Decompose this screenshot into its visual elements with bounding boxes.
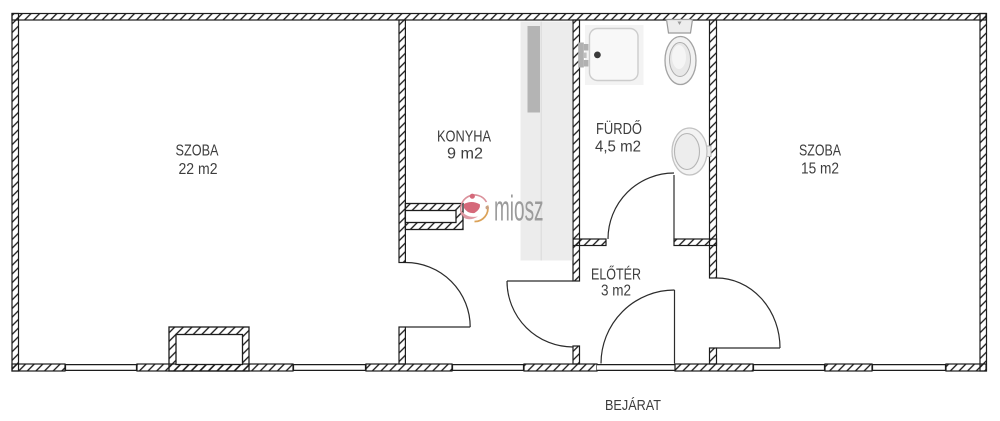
svg-text:22 m2: 22 m2: [179, 161, 218, 178]
svg-text:BEJÁRAT: BEJÁRAT: [605, 397, 661, 414]
svg-text:9 m2: 9 m2: [447, 146, 483, 163]
svg-text:ELŐTÉR: ELŐTÉR: [591, 265, 641, 284]
svg-text:FÜRDŐ: FÜRDŐ: [596, 119, 642, 138]
svg-text:miosz: miosz: [494, 189, 544, 229]
svg-text:4,5 m2: 4,5 m2: [595, 139, 641, 156]
svg-text:3 m2: 3 m2: [601, 283, 631, 300]
svg-text:15 m2: 15 m2: [801, 160, 839, 177]
svg-text:SZOBA: SZOBA: [799, 143, 841, 160]
svg-text:KONYHA: KONYHA: [437, 128, 491, 145]
svg-text:SZOBA: SZOBA: [176, 143, 219, 160]
